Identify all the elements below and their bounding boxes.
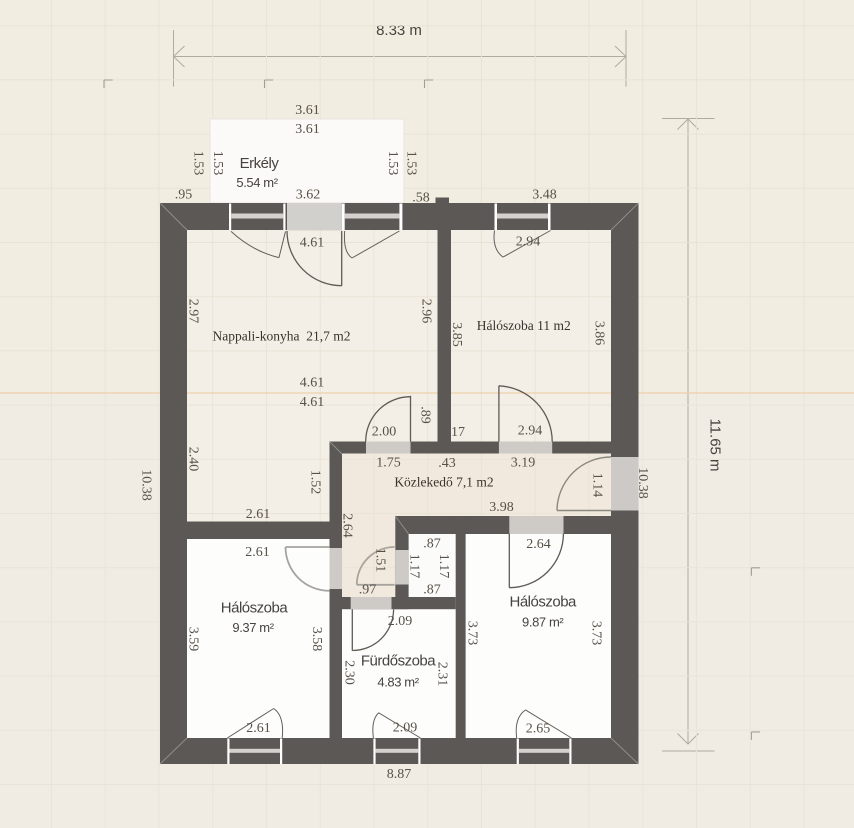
svg-text:2.40: 2.40 — [186, 447, 201, 472]
svg-text:Nappali-konyha 21,7 m2: Nappali-konyha 21,7 m2 — [213, 329, 351, 344]
svg-text:1.75: 1.75 — [376, 456, 401, 471]
svg-text:2.09: 2.09 — [388, 614, 413, 629]
svg-text:11.65 m: 11.65 m — [707, 418, 724, 471]
svg-text:2.97: 2.97 — [186, 299, 201, 324]
svg-text:2.64: 2.64 — [526, 537, 551, 552]
svg-text:2.61: 2.61 — [246, 721, 271, 736]
svg-text:Hálószoba: Hálószoba — [510, 594, 578, 611]
svg-text:Erkély: Erkély — [240, 155, 280, 172]
svg-text:10.38: 10.38 — [635, 467, 650, 499]
svg-text:.95: .95 — [175, 188, 193, 203]
svg-text:3.73: 3.73 — [589, 621, 604, 646]
svg-text:5.54 m²: 5.54 m² — [236, 175, 278, 190]
svg-text:.87: .87 — [423, 583, 441, 598]
svg-text:3.73: 3.73 — [465, 621, 480, 646]
svg-text:1.53: 1.53 — [191, 151, 206, 176]
svg-text:.43: .43 — [438, 456, 456, 471]
svg-text:2.00: 2.00 — [372, 425, 397, 440]
svg-text:2.65: 2.65 — [526, 722, 551, 737]
svg-text:.97: .97 — [359, 583, 377, 598]
svg-text:2.30: 2.30 — [342, 660, 357, 685]
svg-text:Hálószoba: Hálószoba — [221, 600, 289, 617]
svg-text:2.96: 2.96 — [419, 299, 434, 324]
svg-text:1.53: 1.53 — [385, 151, 400, 176]
svg-text:3.61: 3.61 — [295, 103, 320, 118]
svg-text:1.53: 1.53 — [210, 151, 225, 176]
svg-text:4.61: 4.61 — [300, 395, 325, 410]
svg-text:9.37 m²: 9.37 m² — [232, 620, 274, 635]
svg-text:1.53: 1.53 — [404, 151, 419, 176]
svg-text:1.51: 1.51 — [373, 548, 388, 573]
svg-text:3.48: 3.48 — [532, 188, 557, 203]
svg-text:Közlekedő 7,1 m2: Közlekedő 7,1 m2 — [394, 475, 493, 490]
svg-text:.87: .87 — [423, 537, 441, 552]
svg-text:.89: .89 — [418, 406, 433, 424]
svg-text:Fürdőszoba: Fürdőszoba — [361, 653, 436, 670]
svg-text:4.83 m²: 4.83 m² — [377, 675, 419, 690]
svg-text:.58: .58 — [412, 191, 430, 206]
svg-text:3.85: 3.85 — [449, 322, 464, 347]
svg-text:3.19: 3.19 — [511, 456, 536, 471]
svg-text:17: 17 — [451, 425, 465, 440]
svg-text:4.61: 4.61 — [300, 376, 325, 391]
svg-text:3.62: 3.62 — [296, 188, 321, 203]
svg-text:2.31: 2.31 — [435, 662, 450, 687]
svg-text:4.61: 4.61 — [300, 236, 325, 251]
svg-text:Hálószoba 11 m2: Hálószoba 11 m2 — [477, 318, 571, 333]
svg-text:3.61: 3.61 — [295, 122, 320, 137]
svg-text:3.58: 3.58 — [309, 627, 324, 652]
svg-text:3.86: 3.86 — [592, 321, 607, 346]
svg-text:9.87 m²: 9.87 m² — [522, 615, 564, 630]
svg-text:2.61: 2.61 — [245, 545, 270, 560]
svg-text:2.94: 2.94 — [518, 424, 543, 439]
svg-text:8.33 m: 8.33 m — [376, 22, 422, 39]
svg-text:2.64: 2.64 — [340, 513, 355, 538]
svg-text:2.94: 2.94 — [516, 235, 541, 250]
svg-text:2.09: 2.09 — [393, 721, 418, 736]
svg-text:3.59: 3.59 — [186, 627, 201, 652]
svg-text:8.87: 8.87 — [387, 767, 412, 782]
svg-text:1.52: 1.52 — [308, 470, 323, 495]
svg-text:1.14: 1.14 — [590, 473, 605, 498]
svg-text:1.17: 1.17 — [436, 554, 451, 579]
svg-text:1.17: 1.17 — [407, 554, 422, 579]
svg-text:10.38: 10.38 — [139, 469, 154, 501]
svg-text:2.61: 2.61 — [246, 507, 271, 522]
svg-text:3.98: 3.98 — [489, 500, 514, 515]
